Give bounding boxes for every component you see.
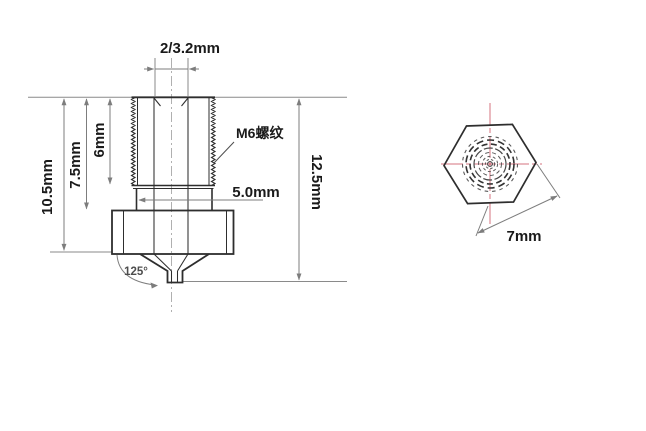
nozzle-cone bbox=[140, 254, 209, 283]
label-shank-diameter: 5.0mm bbox=[232, 184, 280, 201]
bore-chamfer-left bbox=[154, 98, 161, 106]
side-view: 2/3.2mm M6螺纹 5.0mm 6mm 7.5mm 10.5mm 12.5… bbox=[28, 40, 347, 312]
top-view: 7mm bbox=[441, 103, 560, 245]
label-overall-length: 12.5mm bbox=[308, 154, 325, 210]
center-dot bbox=[489, 163, 491, 165]
hex-extension-line-right bbox=[537, 164, 560, 198]
label-thread: M6螺纹 bbox=[236, 125, 284, 141]
label-hex-across-flats: 7mm bbox=[506, 228, 541, 245]
hex-dimension bbox=[476, 164, 560, 236]
thread-serration-right bbox=[212, 98, 216, 186]
label-bore-diameter: 2/3.2mm bbox=[160, 40, 220, 57]
label-shank-length: 7.5mm bbox=[67, 141, 84, 189]
thread-leader-line bbox=[214, 142, 234, 163]
center-marks bbox=[441, 103, 542, 224]
threaded-barrel bbox=[132, 97, 216, 188]
label-body-length: 10.5mm bbox=[39, 159, 56, 215]
label-tip-angle: 125° bbox=[124, 266, 148, 278]
angle-arc-arrowhead bbox=[151, 283, 159, 289]
technical-drawing-canvas: 2/3.2mm M6螺纹 5.0mm 6mm 7.5mm 10.5mm 12.5… bbox=[0, 0, 646, 431]
hex-body bbox=[112, 211, 234, 255]
label-thread-length: 6mm bbox=[91, 122, 108, 157]
dimension-lines bbox=[64, 69, 299, 289]
bore-chamfer-right bbox=[182, 98, 189, 106]
hex-body-outline bbox=[112, 211, 234, 255]
nozzle-drawing: 2/3.2mm M6螺纹 5.0mm 6mm 7.5mm 10.5mm 12.5… bbox=[0, 0, 646, 431]
thread-serration-left bbox=[132, 98, 136, 186]
